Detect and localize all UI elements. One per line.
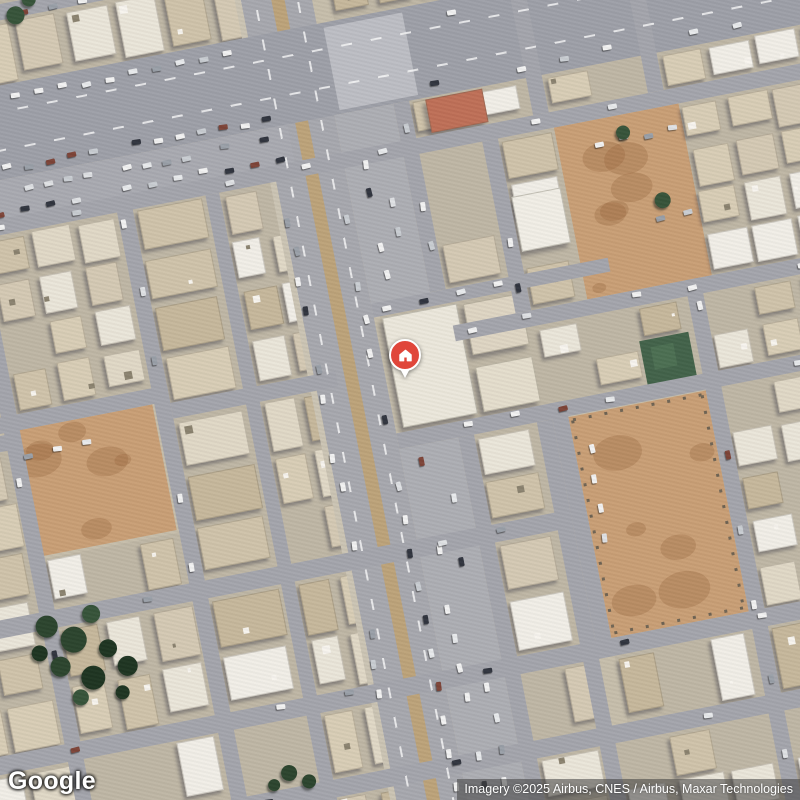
satellite-map[interactable]: Google Imagery ©2025 Airbus, CNES / Airb…	[0, 0, 800, 800]
map-rotated-grid	[0, 0, 800, 800]
map-imagery	[0, 0, 800, 800]
home-marker[interactable]	[389, 339, 421, 385]
google-logo[interactable]: Google	[8, 767, 96, 796]
marker-pin	[389, 339, 421, 371]
texture-overlay	[0, 0, 800, 800]
home-icon	[397, 347, 414, 364]
imagery-attribution: Imagery ©2025 Airbus, CNES / Airbus, Max…	[457, 779, 800, 800]
